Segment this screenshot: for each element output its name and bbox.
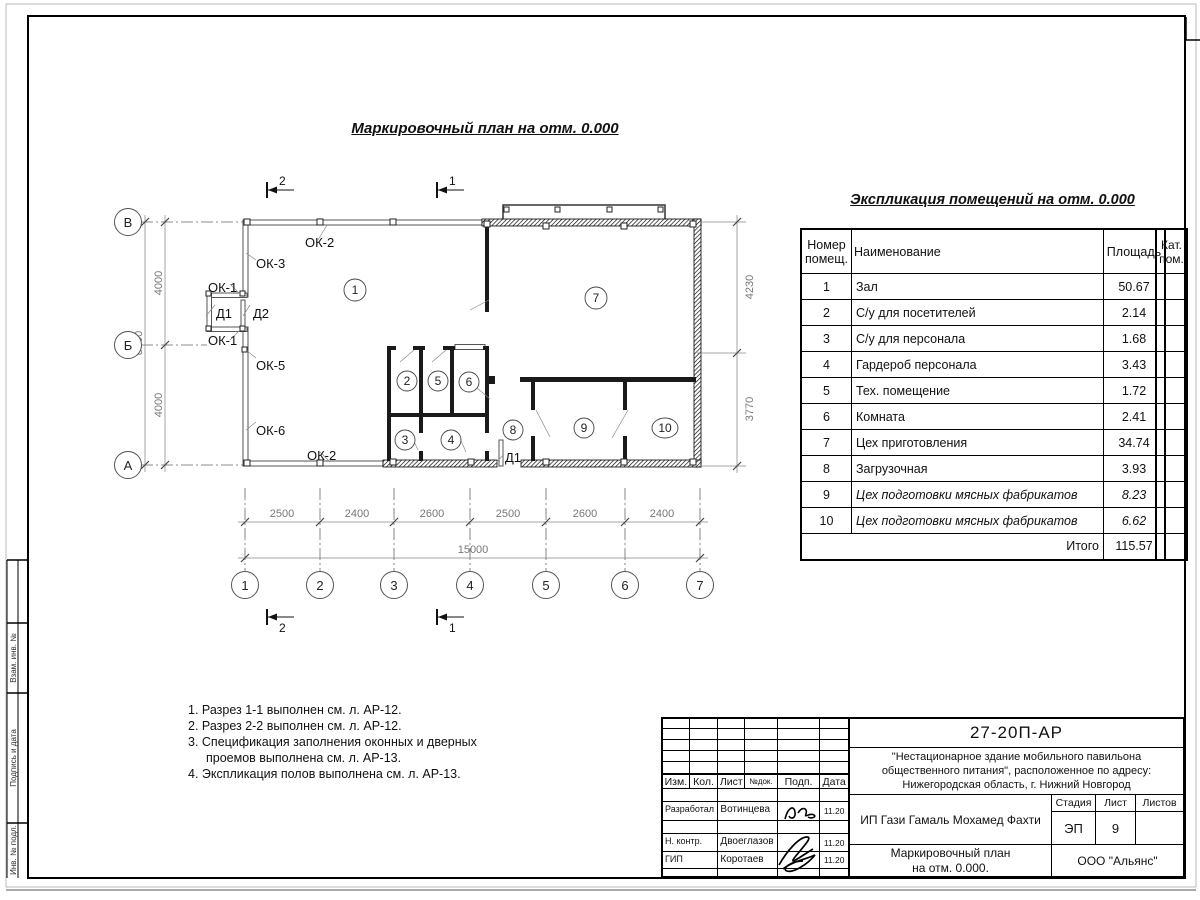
project-object: "Нестационарное здание мобильного павиль…: [850, 748, 1183, 795]
note-item: 4. Экспликация полов выполнена см. л. АР…: [188, 766, 506, 782]
room-name-cell: Тех. помещение: [852, 378, 1104, 404]
door-label: Д2: [253, 306, 269, 321]
dim-label: 4000: [153, 393, 165, 417]
side-stamp-label: Взам. инв. №: [9, 633, 18, 683]
role-label: Н. контр.: [663, 834, 718, 851]
section-mark-number: 1: [449, 621, 456, 635]
room-num-cell: 10: [801, 508, 852, 534]
room-number: 4: [448, 433, 455, 447]
table-row: 1 Зал 50.67: [801, 274, 1165, 300]
section-mark-number: 1: [449, 174, 456, 188]
room-number: 8: [510, 423, 517, 437]
side-stamp-label: Инв. № подл.: [9, 825, 18, 875]
window-label: ОК-1: [208, 280, 237, 295]
signature-ncontrol-gip: [773, 831, 825, 875]
stage-sheet-box: Стадия Лист Листов ЭП 9: [1052, 795, 1183, 844]
col-podp: Подп.: [778, 775, 821, 788]
room-number: 3: [402, 433, 409, 447]
room-name-cell: С/у для персонала: [852, 326, 1104, 352]
note-item: 3. Спецификация заполнения оконных и две…: [188, 734, 506, 766]
window-label: ОК-5: [256, 358, 285, 373]
title-block: Изм. Кол. Лист №док. Подп. Дата Разработ…: [661, 717, 1185, 878]
dim-label: 2600: [573, 508, 597, 520]
organization-name: ООО "Альянс": [1052, 845, 1183, 876]
col-header-number: Номер помещ.: [801, 229, 852, 274]
role-date: 11.20: [820, 802, 848, 820]
dim-label: 2600: [420, 508, 444, 520]
col-header-name: Наименование: [852, 229, 1104, 274]
axis-row-label: А: [124, 458, 133, 473]
axis-col-label: 1: [241, 578, 248, 593]
drawing-notes: 1. Разрез 1-1 выполнен см. л. АР-12. 2. …: [188, 702, 506, 782]
window-label: ОК-6: [256, 423, 285, 438]
axis-col-label: 4: [466, 578, 473, 593]
room-num-cell: 2: [801, 300, 852, 326]
side-stamp-label: Подпись и дата: [9, 729, 18, 787]
dim-label: 2500: [496, 508, 520, 520]
doc-title-line2: на отм. 0.000.: [912, 861, 989, 875]
axis-col-label: 5: [542, 578, 549, 593]
room-name-cell: С/у для посетителей: [852, 300, 1104, 326]
room-number: 10: [658, 421, 672, 435]
note-item: 2. Разрез 2-2 выполнен см. л. АР-12.: [188, 718, 506, 734]
table-total-row: Итого 115.57: [801, 534, 1165, 560]
table-row: 10 Цех подготовки мясных фабрикатов 6.62: [801, 508, 1165, 534]
role-label: Разработал: [663, 802, 718, 820]
door-label: Д1: [216, 306, 232, 321]
room-number: 7: [593, 291, 600, 305]
table-row: 3 С/у для персонала 1.68: [801, 326, 1165, 352]
room-name-cell: Цех подготовки мясных фабрикатов: [852, 482, 1104, 508]
stage-label: Стадия: [1052, 795, 1096, 811]
window-label: ОК-2: [305, 235, 334, 250]
table-row: 7 Цех приготовления 34.74: [801, 430, 1165, 456]
room-name-cell: Зал: [852, 274, 1104, 300]
room-name-cell: Гардероб персонала: [852, 352, 1104, 378]
room-name-cell: Цех подготовки мясных фабрикатов: [852, 508, 1104, 534]
col-data: Дата: [820, 775, 848, 788]
table-row: 2 С/у для посетителей 2.14: [801, 300, 1165, 326]
axis-row-label: Б: [124, 338, 133, 353]
room-num-cell: 4: [801, 352, 852, 378]
col-ndok: №док.: [745, 775, 778, 788]
revision-header-row: Изм. Кол. Лист №док. Подп. Дата: [663, 774, 848, 789]
axis-col-label: 6: [621, 578, 628, 593]
plan-title: Маркировочный план на отм. 0.000: [350, 120, 620, 137]
room-num-cell: 9: [801, 482, 852, 508]
dim-label: 4000: [153, 271, 165, 295]
signature-developer: [781, 803, 823, 825]
table-row: 8 Загрузочная 3.93: [801, 456, 1165, 482]
table-row: 5 Тех. помещение 1.72: [801, 378, 1165, 404]
doc-title: Маркировочный план на отм. 0.000.: [850, 845, 1052, 876]
role-name: Двоеглазов: [718, 834, 777, 851]
dim-label: 2400: [650, 508, 674, 520]
section-mark-number: 2: [279, 621, 286, 635]
sheet-label: Лист: [1096, 795, 1136, 811]
room-name-cell: Цех приготовления: [852, 430, 1104, 456]
dim-label: 3770: [744, 397, 756, 421]
role-name: Коротаев: [718, 852, 777, 868]
col-list: Лист: [718, 775, 745, 788]
sheets-label: Листов: [1136, 795, 1183, 811]
table-row: 9 Цех подготовки мясных фабрикатов 8.23: [801, 482, 1165, 508]
axis-row-label: В: [124, 215, 133, 230]
room-num-cell: 6: [801, 404, 852, 430]
sheet-value: 9: [1096, 812, 1136, 844]
client-name: ИП Гази Гамаль Мохамед Фахти: [850, 795, 1052, 844]
room-number: 5: [435, 374, 442, 388]
door-label: Д1: [505, 450, 521, 465]
note-item: 1. Разрез 1-1 выполнен см. л. АР-12.: [188, 702, 506, 718]
room-num-cell: 8: [801, 456, 852, 482]
total-label: Итого: [801, 534, 1104, 560]
axis-col-label: 2: [316, 578, 323, 593]
room-number: 6: [466, 375, 473, 389]
room-name-cell: Комната: [852, 404, 1104, 430]
col-header-category: Кат. пом.: [1156, 229, 1187, 274]
room-number: 2: [404, 374, 411, 388]
table-header-row: Номер помещ. Наименование Площадь: [801, 229, 1165, 274]
sheets-value: [1136, 812, 1183, 844]
dim-label: 2500: [270, 508, 294, 520]
room-name-cell: Загрузочная: [852, 456, 1104, 482]
room-num-cell: 5: [801, 378, 852, 404]
explication-title: Экспликация помещений на отм. 0.000: [845, 192, 1140, 208]
room-num-cell: 7: [801, 430, 852, 456]
room-number: 9: [581, 421, 588, 435]
section-mark-number: 2: [279, 174, 286, 188]
stage-value: ЭП: [1052, 812, 1096, 844]
window-label: ОК-3: [256, 256, 285, 271]
doc-title-line1: Маркировочный план: [891, 846, 1011, 860]
col-izm: Изм.: [663, 775, 690, 788]
window-label: ОК-1: [208, 333, 237, 348]
category-column: Кат. пом.: [1155, 228, 1188, 561]
room-num-cell: 3: [801, 326, 852, 352]
window-label: ОК-2: [307, 448, 336, 463]
room-num-cell: 1: [801, 274, 852, 300]
axis-col-label: 7: [696, 578, 703, 593]
title-block-main: 27-20П-АР "Нестационарное здание мобильн…: [850, 719, 1183, 876]
table-row: 6 Комната 2.41: [801, 404, 1165, 430]
axis-col-label: 3: [390, 578, 397, 593]
table-row: 4 Гардероб персонала 3.43: [801, 352, 1165, 378]
room-number: 1: [352, 283, 359, 297]
drawing-sheet: Взам. инв. № Подпись и дата Инв. № подл.: [0, 0, 1200, 900]
dim-label-total: 15000: [458, 544, 489, 556]
explication-table: Номер помещ. Наименование Площадь 1 Зал …: [800, 228, 1166, 561]
dim-label: 2400: [345, 508, 369, 520]
role-name: Вотинцева: [718, 802, 777, 820]
project-code: 27-20П-АР: [850, 719, 1183, 748]
dim-label: 4230: [744, 275, 756, 299]
col-kol: Кол.: [690, 775, 719, 788]
role-label: ГИП: [663, 852, 718, 868]
